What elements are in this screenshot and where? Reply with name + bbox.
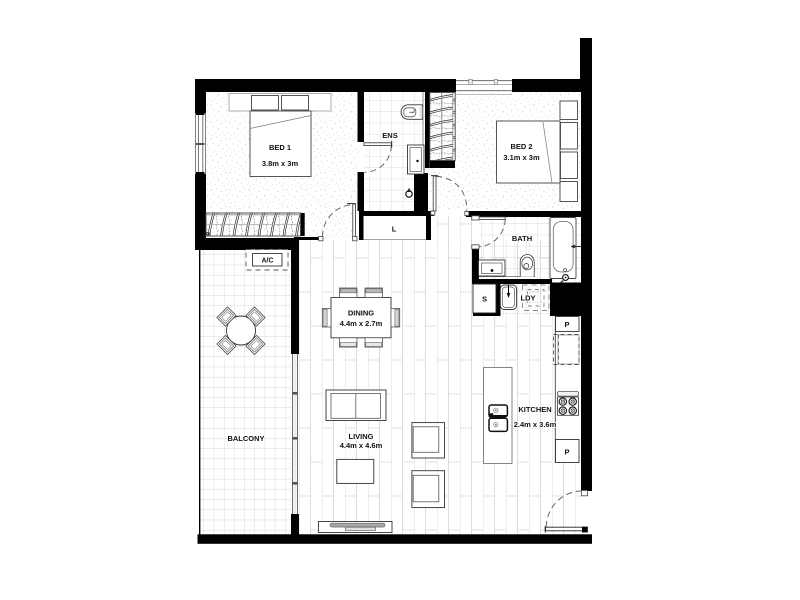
svg-text:BED 1: BED 1	[269, 143, 291, 152]
svg-text:L: L	[392, 225, 397, 234]
svg-text:BALCONY: BALCONY	[227, 434, 264, 443]
svg-text:LIVING: LIVING	[348, 432, 373, 441]
svg-text:ENS: ENS	[382, 131, 397, 140]
svg-text:A/C: A/C	[261, 258, 273, 265]
svg-text:KITCHEN: KITCHEN	[518, 405, 551, 414]
svg-text:3.1m x 3m: 3.1m x 3m	[503, 153, 540, 162]
svg-text:P: P	[564, 320, 569, 329]
svg-text:2.4m x 3.6m: 2.4m x 3.6m	[514, 420, 557, 429]
svg-text:BATH: BATH	[512, 234, 532, 243]
svg-text:4.4m x 4.6m: 4.4m x 4.6m	[340, 441, 383, 450]
svg-text:P: P	[564, 448, 569, 457]
svg-text:3.8m x 3m: 3.8m x 3m	[262, 159, 299, 168]
svg-text:DINING: DINING	[348, 309, 374, 318]
svg-text:BED 2: BED 2	[510, 142, 532, 151]
svg-text:S: S	[482, 295, 487, 304]
svg-text:LDY: LDY	[521, 294, 536, 303]
svg-text:4.4m x 2.7m: 4.4m x 2.7m	[340, 319, 383, 328]
